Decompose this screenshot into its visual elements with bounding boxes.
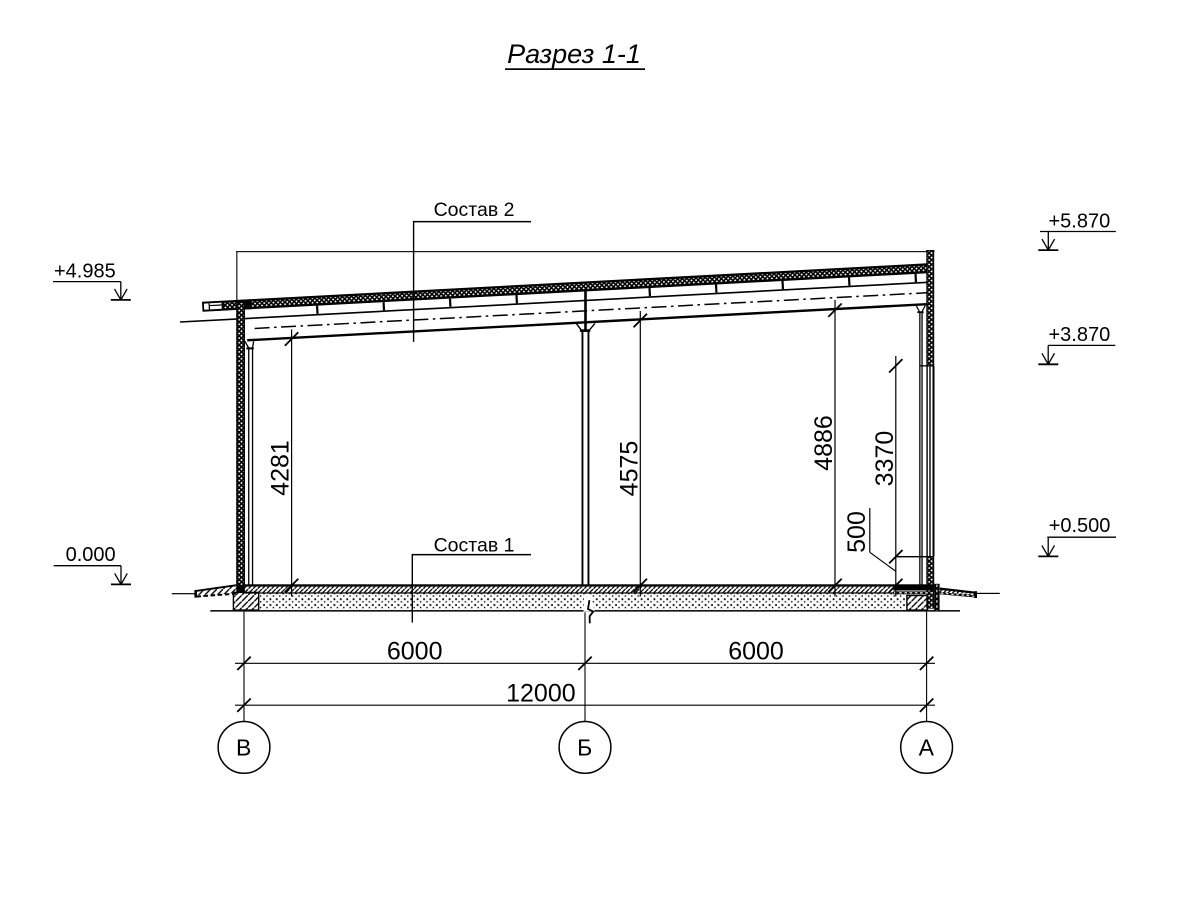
svg-text:Состав 2: Состав 2 bbox=[434, 199, 515, 221]
svg-text:Состав 1: Состав 1 bbox=[434, 535, 515, 557]
svg-text:4886: 4886 bbox=[810, 415, 838, 471]
svg-text:Б: Б bbox=[577, 735, 592, 761]
svg-text:+3.870: +3.870 bbox=[1049, 324, 1111, 346]
svg-text:12000: 12000 bbox=[506, 679, 576, 707]
svg-text:3370: 3370 bbox=[871, 431, 899, 487]
svg-text:В: В bbox=[236, 735, 251, 761]
svg-text:Разрез 1-1: Разрез 1-1 bbox=[507, 39, 641, 69]
svg-text:500: 500 bbox=[843, 511, 871, 553]
svg-text:+5.870: +5.870 bbox=[1049, 211, 1111, 233]
svg-text:+0.500: +0.500 bbox=[1049, 515, 1111, 537]
svg-text:4575: 4575 bbox=[615, 441, 643, 497]
svg-text:6000: 6000 bbox=[728, 637, 784, 665]
svg-text:А: А bbox=[919, 735, 935, 761]
svg-text:4281: 4281 bbox=[267, 440, 295, 496]
svg-text:+4.985: +4.985 bbox=[54, 260, 116, 282]
svg-text:0.000: 0.000 bbox=[66, 544, 116, 566]
svg-text:6000: 6000 bbox=[387, 637, 443, 665]
